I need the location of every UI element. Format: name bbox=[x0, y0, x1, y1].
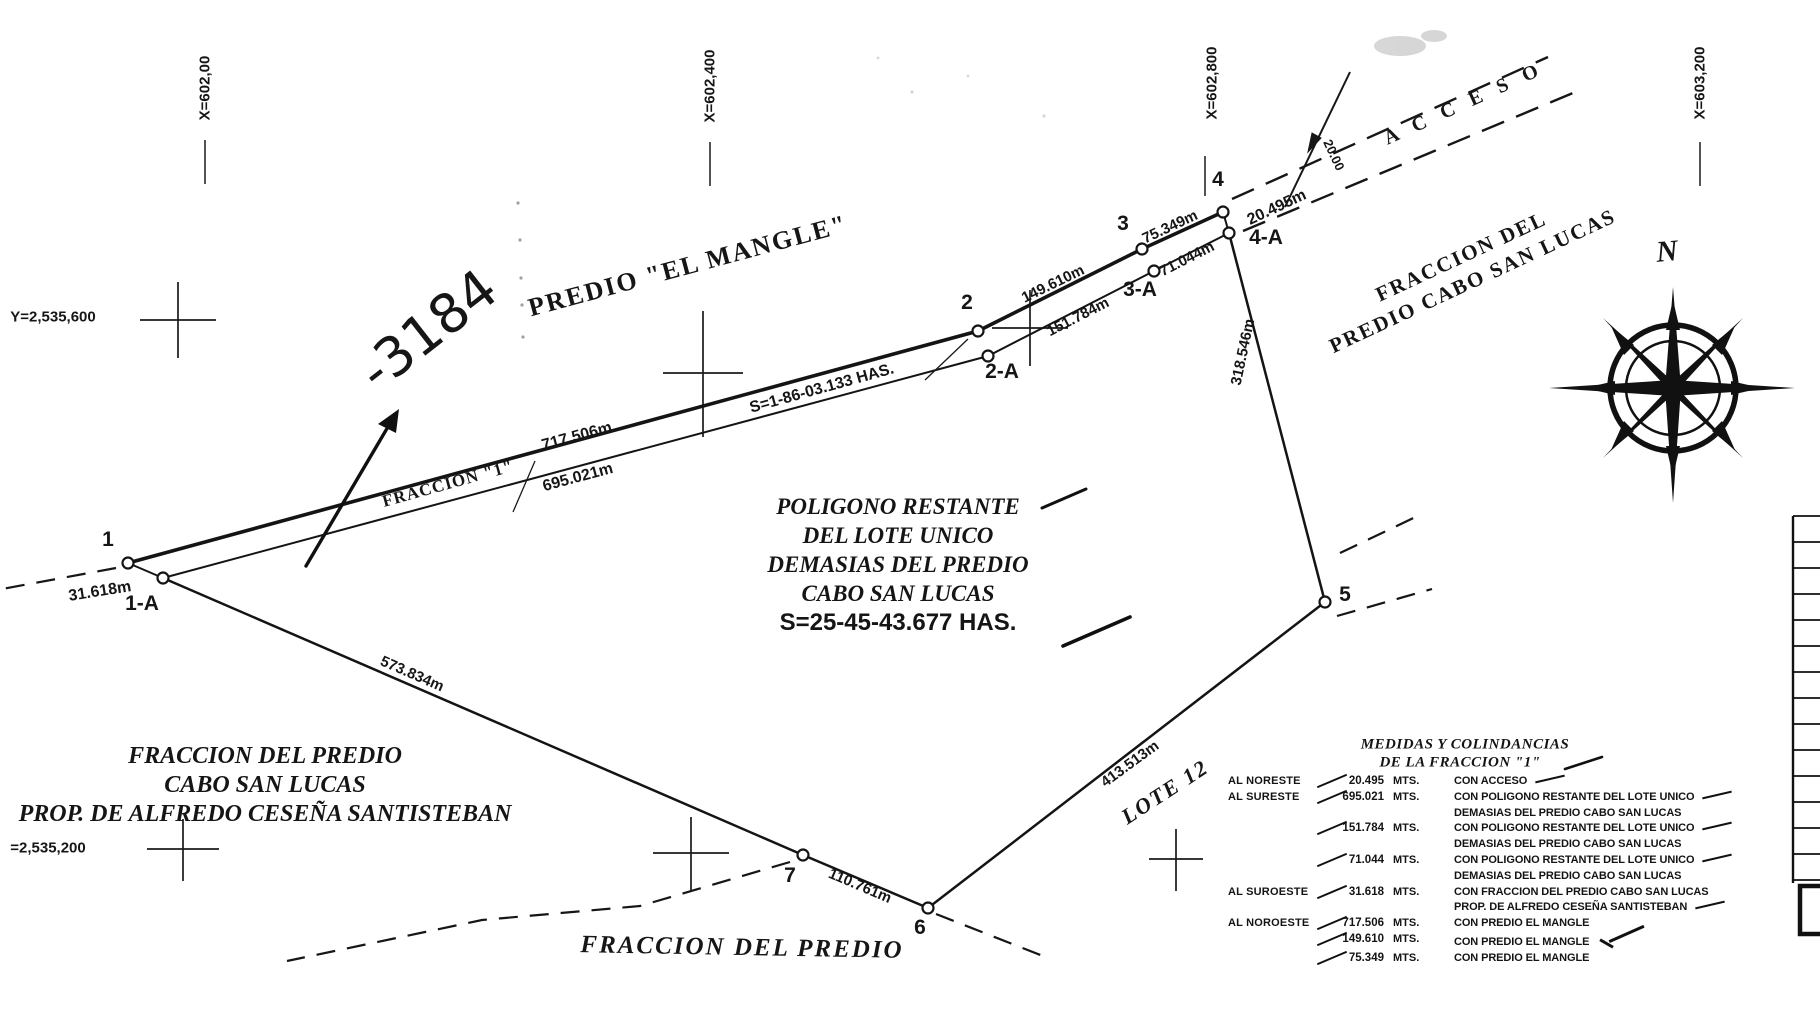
check-after-table-title bbox=[1565, 757, 1602, 769]
grid-x-label-1: X=602,00 bbox=[197, 56, 214, 121]
table-desc-line: DEMASIAS DEL PREDIO CABO SAN LUCAS bbox=[1454, 806, 1732, 822]
title-block-bracket bbox=[1800, 886, 1820, 934]
vertex-7-marker bbox=[798, 850, 809, 861]
table-value-cell: 695.021 bbox=[1328, 790, 1384, 806]
check-after-has bbox=[1063, 617, 1130, 646]
vertex-4-marker bbox=[1218, 207, 1229, 218]
handwritten-slash-mark bbox=[1317, 951, 1347, 965]
dashed-ext-east-lower bbox=[1337, 589, 1432, 616]
table-desc-line: CON PREDIO EL MANGLE bbox=[1454, 951, 1589, 967]
region-bottom-label: FRACCION DEL PREDIO bbox=[580, 931, 904, 965]
vertex-7-label: 7 bbox=[784, 864, 796, 888]
table-desc-cell: CON ACCESO bbox=[1454, 774, 1565, 790]
handwritten-slash-mark bbox=[1317, 932, 1347, 946]
vertex-3-label: 3 bbox=[1117, 212, 1129, 236]
table-direction-cell: AL NOROESTE bbox=[1228, 916, 1328, 932]
poligono-line4: CABO SAN LUCAS bbox=[767, 579, 1028, 608]
grid-ticks bbox=[205, 140, 1700, 196]
vertex-4-label: 4 bbox=[1212, 168, 1224, 192]
table-desc-line: CON POLIGONO RESTANTE DEL LOTE UNICO bbox=[1454, 853, 1732, 869]
table-desc-line: CON PREDIO EL MANGLE bbox=[1454, 916, 1589, 932]
region-left-line2: CABO SAN LUCAS bbox=[19, 771, 512, 800]
table-row: 75.349MTS.CON PREDIO EL MANGLE bbox=[1228, 951, 1732, 967]
table-desc-cell: CON PREDIO EL MANGLE bbox=[1454, 951, 1589, 967]
compass-rose bbox=[1549, 287, 1795, 503]
table-desc-line: CON POLIGONO RESTANTE DEL LOTE UNICO bbox=[1454, 821, 1732, 837]
handwritten-check-mark bbox=[1695, 901, 1725, 910]
table-value-cell: 717.506 bbox=[1328, 916, 1384, 932]
grid-cross bbox=[140, 282, 216, 358]
compass-south-point bbox=[1665, 388, 1681, 503]
table-desc-line: PROP. DE ALFREDO CESEÑA SANTISTEBAN bbox=[1454, 900, 1725, 916]
table-unit-cell: MTS. bbox=[1393, 774, 1433, 790]
grid-cross bbox=[653, 817, 729, 891]
vertex-1a-label: 1-A bbox=[125, 592, 159, 616]
table-value-cell: 75.349 bbox=[1328, 951, 1384, 967]
vertex-1a-marker bbox=[158, 573, 169, 584]
grid-x-label-3: X=602,800 bbox=[1204, 47, 1221, 120]
handwritten-slash-mark bbox=[1317, 853, 1347, 867]
handwritten-slash-mark bbox=[1317, 821, 1347, 835]
region-left-line1: FRACCION DEL PREDIO bbox=[19, 742, 512, 771]
poligono-line2: DEL LOTE UNICO bbox=[767, 521, 1028, 550]
table-title-line2: DE LA FRACCION "1" bbox=[1379, 755, 1540, 772]
table-unit-cell: MTS. bbox=[1393, 951, 1433, 967]
handwritten-check-mark bbox=[1703, 854, 1733, 863]
table-value-cell: 149.610 bbox=[1328, 932, 1384, 948]
table-row: AL NORESTE20.495MTS.CON ACCESO bbox=[1228, 774, 1732, 790]
table-desc-line: CON PREDIO EL MANGLE bbox=[1454, 932, 1647, 951]
vertex-1-label: 1 bbox=[102, 528, 114, 552]
table-unit-cell: MTS. bbox=[1393, 790, 1433, 806]
scan-noise bbox=[877, 30, 1447, 118]
compass-main-points bbox=[1549, 287, 1795, 503]
table-value-cell: 71.044 bbox=[1328, 853, 1384, 869]
vertex-6-label: 6 bbox=[914, 916, 926, 940]
table-desc-cell: CON POLIGONO RESTANTE DEL LOTE UNICODEMA… bbox=[1454, 853, 1732, 885]
table-desc-cell: CON PREDIO EL MANGLE bbox=[1454, 916, 1589, 932]
table-unit-cell: MTS. bbox=[1393, 885, 1433, 901]
vertex-4a-label: 4-A bbox=[1249, 226, 1283, 250]
compass-north-point bbox=[1665, 287, 1681, 388]
table-row: AL SUROESTE31.618MTS.CON FRACCION DEL PR… bbox=[1228, 885, 1732, 917]
grid-x-label-2: X=602,400 bbox=[702, 50, 719, 123]
region-left-block: FRACCION DEL PREDIO CABO SAN LUCAS PROP.… bbox=[19, 742, 512, 829]
table-desc-cell: CON POLIGONO RESTANTE DEL LOTE UNICODEMA… bbox=[1454, 790, 1732, 822]
table-direction-cell: AL NORESTE bbox=[1228, 774, 1328, 790]
table-title-line1: MEDIDAS Y COLINDANCIAS bbox=[1361, 737, 1570, 754]
vertex-5-label: 5 bbox=[1339, 583, 1351, 607]
grid-cross bbox=[663, 311, 743, 437]
table-value-cell: 31.618 bbox=[1328, 885, 1384, 901]
handwritten-check-mark bbox=[1703, 790, 1733, 799]
vertex-2-label: 2 bbox=[961, 291, 973, 315]
handwritten-check-mark bbox=[1535, 775, 1565, 784]
table-direction-cell: AL SURESTE bbox=[1228, 790, 1328, 806]
grid-cross bbox=[1149, 829, 1203, 891]
check-after-poligono bbox=[1042, 489, 1086, 508]
table-desc-line: DEMASIAS DEL PREDIO CABO SAN LUCAS bbox=[1454, 869, 1732, 885]
vertex-6-marker bbox=[923, 903, 934, 914]
dashed-ext-southeast bbox=[936, 914, 1048, 958]
vertex-5-marker bbox=[1320, 597, 1331, 608]
table-desc-line: CON ACCESO bbox=[1454, 774, 1565, 790]
table-row: AL NOROESTE717.506MTS.CON PREDIO EL MANG… bbox=[1228, 916, 1732, 932]
dashed-ext-east-upper bbox=[1340, 513, 1424, 553]
table-row: 151.784MTS.CON POLIGONO RESTANTE DEL LOT… bbox=[1228, 821, 1732, 853]
handwritten-check-mark bbox=[1703, 822, 1733, 831]
table-value-cell: 20.495 bbox=[1328, 774, 1384, 790]
handwritten-big-check-mark bbox=[1599, 932, 1647, 948]
vertex-3a-label: 3-A bbox=[1123, 278, 1157, 302]
grid-y-label-top: Y=2,535,600 bbox=[10, 309, 96, 326]
table-desc-cell: CON FRACCION DEL PREDIO CABO SAN LUCASPR… bbox=[1454, 885, 1725, 917]
vertex-1-marker bbox=[123, 558, 134, 569]
survey-plat-scan: X=602,00 X=602,400 X=602,800 X=603,200 Y… bbox=[0, 0, 1820, 1024]
table-unit-cell: MTS. bbox=[1393, 916, 1433, 932]
title-block-edge bbox=[1793, 516, 1820, 934]
poligono-line1: POLIGONO RESTANTE bbox=[767, 492, 1028, 521]
table-desc-line: CON FRACCION DEL PREDIO CABO SAN LUCAS bbox=[1454, 885, 1725, 901]
vertex-4a-marker bbox=[1224, 228, 1235, 239]
handwritten-arrowhead bbox=[378, 409, 399, 433]
vertex-2a-label: 2-A bbox=[985, 360, 1019, 384]
poligono-line3: DEMASIAS DEL PREDIO bbox=[767, 550, 1028, 579]
table-value-cell: 151.784 bbox=[1328, 821, 1384, 837]
compass-north-label: N bbox=[1655, 234, 1680, 270]
region-left-line3: PROP. DE ALFREDO CESEÑA SANTISTEBAN bbox=[19, 800, 512, 829]
medidas-table-rows: AL NORESTE20.495MTS.CON ACCESOAL SURESTE… bbox=[1228, 774, 1732, 967]
table-desc-cell: CON PREDIO EL MANGLE bbox=[1454, 932, 1647, 951]
vertex-2-marker bbox=[973, 326, 984, 337]
dashed-extensions bbox=[2, 513, 1432, 961]
grid-y-label-bottom: =2,535,200 bbox=[10, 840, 86, 857]
table-row: 149.610MTS.CON PREDIO EL MANGLE bbox=[1228, 932, 1732, 951]
table-direction-cell: AL SUROESTE bbox=[1228, 885, 1328, 901]
table-unit-cell: MTS. bbox=[1393, 821, 1433, 837]
table-desc-line: DEMASIAS DEL PREDIO CABO SAN LUCAS bbox=[1454, 837, 1732, 853]
table-row: 71.044MTS.CON POLIGONO RESTANTE DEL LOTE… bbox=[1228, 853, 1732, 885]
table-row: AL SURESTE695.021MTS.CON POLIGONO RESTAN… bbox=[1228, 790, 1732, 822]
table-unit-cell: MTS. bbox=[1393, 853, 1433, 869]
grid-x-label-4: X=603,200 bbox=[1692, 47, 1709, 120]
table-desc-cell: CON POLIGONO RESTANTE DEL LOTE UNICODEMA… bbox=[1454, 821, 1732, 853]
poligono-area: S=25-45-43.677 HAS. bbox=[767, 608, 1028, 637]
poligono-restante-block: POLIGONO RESTANTE DEL LOTE UNICO DEMASIA… bbox=[767, 492, 1028, 637]
table-desc-line: CON POLIGONO RESTANTE DEL LOTE UNICO bbox=[1454, 790, 1732, 806]
table-unit-cell: MTS. bbox=[1393, 932, 1433, 948]
fold-dotted-line bbox=[516, 201, 524, 338]
